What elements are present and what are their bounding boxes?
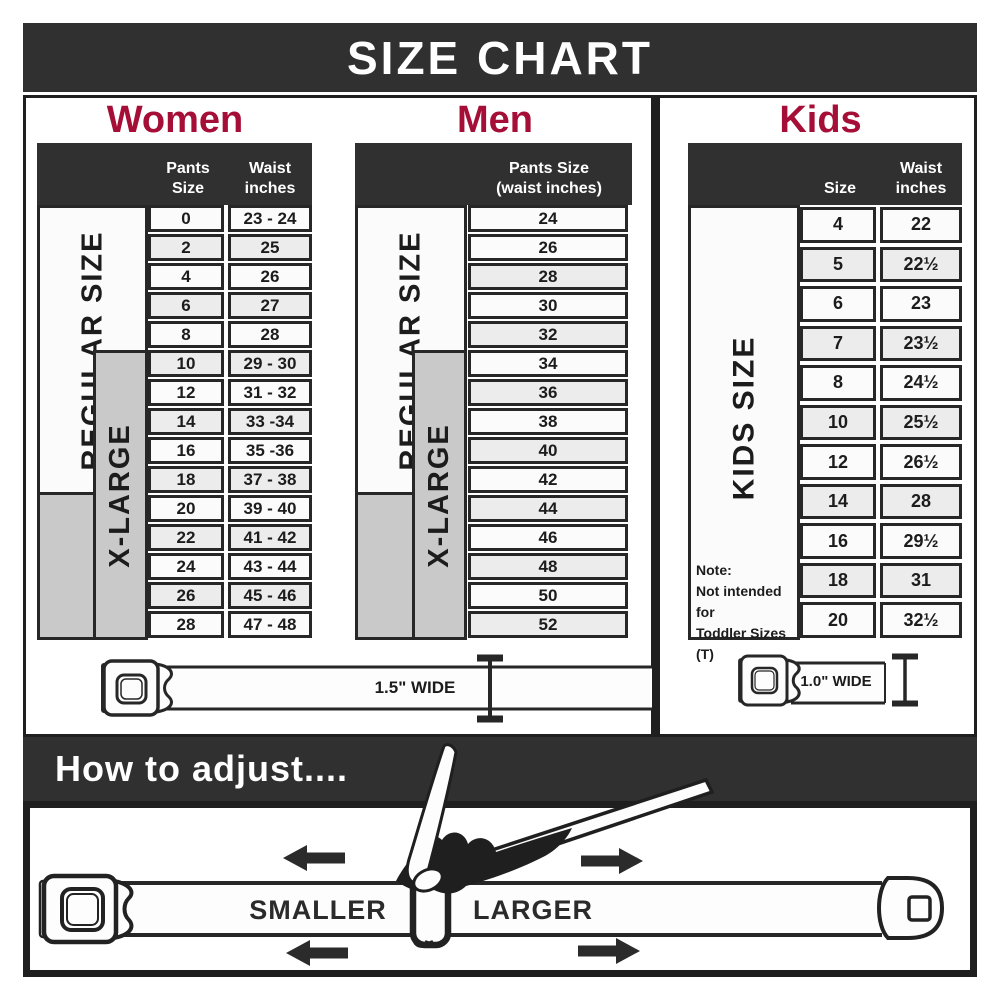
table-row: 1428 <box>800 482 962 522</box>
kids-note-title: Note: <box>696 560 796 581</box>
table-cell: 22 <box>880 207 962 243</box>
panel-divider <box>651 95 660 737</box>
kids-table-header: Size Waist inches <box>688 143 962 205</box>
table-row: 24 <box>468 205 632 234</box>
table-cell: 28 <box>228 321 312 348</box>
table-cell: 45 - 46 <box>228 582 312 609</box>
table-row: 1629½ <box>800 521 962 561</box>
table-row: 522½ <box>800 245 962 285</box>
table-cell: 27 <box>228 292 312 319</box>
table-row: 2645 - 46 <box>148 582 312 611</box>
men-xlarge-box: X-LARGE <box>412 350 467 640</box>
table-cell: 12 <box>800 444 876 480</box>
kids-col2-header: Waist inches <box>880 153 962 199</box>
men-table: 242628303234363840424446485052 <box>468 205 632 640</box>
table-row: 36 <box>468 379 632 408</box>
table-cell: 39 - 40 <box>228 495 312 522</box>
table-cell: 34 <box>468 350 628 377</box>
seatbelt-buckle-icon <box>40 876 131 942</box>
table-cell: 14 <box>800 484 876 520</box>
table-cell: 10 <box>148 350 224 377</box>
table-cell: 26 <box>228 263 312 290</box>
larger-label: LARGER <box>474 896 592 924</box>
arrow-right-icon <box>578 938 640 964</box>
table-cell: 5 <box>800 247 876 283</box>
table-cell: 20 <box>800 602 876 638</box>
table-cell: 42 <box>468 466 628 493</box>
table-cell: 18 <box>800 563 876 599</box>
seatbelt-buckle-icon <box>102 661 171 715</box>
table-row: 40 <box>468 437 632 466</box>
table-cell: 30 <box>468 292 628 319</box>
table-cell: 23½ <box>880 326 962 362</box>
women-col1-header: Pants Size <box>148 173 228 199</box>
table-cell: 14 <box>148 408 224 435</box>
kids-size-label: KIDS SIZE <box>727 336 761 501</box>
table-cell: 2 <box>148 234 224 261</box>
table-cell: 16 <box>148 437 224 464</box>
table-cell: 28 <box>148 611 224 638</box>
men-col-header: Pants Size (waist inches) <box>468 151 630 199</box>
kids-size-label-wrap: KIDS SIZE <box>691 243 797 593</box>
arrow-left-icon <box>283 845 345 871</box>
table-cell: 22 <box>148 524 224 551</box>
table-row: 1635 -36 <box>148 437 312 466</box>
table-cell: 31 <box>880 563 962 599</box>
table-cell: 35 -36 <box>228 437 312 464</box>
table-cell: 37 - 38 <box>228 466 312 493</box>
kids-belt-width-label: 1.0" WIDE <box>789 671 883 691</box>
men-table-header: Pants Size (waist inches) <box>355 143 632 205</box>
table-row: 38 <box>468 408 632 437</box>
table-row: 34 <box>468 350 632 379</box>
table-cell: 32½ <box>880 602 962 638</box>
table-cell: 16 <box>800 523 876 559</box>
women-xlarge-box: X-LARGE <box>93 350 148 640</box>
page-title: SIZE CHART <box>347 31 653 85</box>
table-row: 32 <box>468 321 632 350</box>
arrow-right-icon <box>581 848 643 874</box>
table-row: 723½ <box>800 324 962 364</box>
title-bar: SIZE CHART <box>23 23 977 92</box>
table-cell: 4 <box>800 207 876 243</box>
table-cell: 40 <box>468 437 628 464</box>
table-row: 2032½ <box>800 600 962 640</box>
table-cell: 52 <box>468 611 628 638</box>
women-table: 023 - 242254266278281029 - 301231 - 3214… <box>148 205 312 640</box>
adjust-illustration <box>30 740 970 970</box>
table-row: 1433 -34 <box>148 408 312 437</box>
women-table-header: Pants Size Waist inches <box>37 143 312 205</box>
table-cell: 18 <box>148 466 224 493</box>
table-cell: 38 <box>468 408 628 435</box>
table-cell: 29 - 30 <box>228 350 312 377</box>
table-row: 623 <box>800 284 962 324</box>
table-row: 50 <box>468 582 632 611</box>
men-heading: Men <box>395 99 595 142</box>
table-cell: 4 <box>148 263 224 290</box>
women-col2-header: Waist inches <box>228 153 312 199</box>
kids-heading: Kids <box>718 99 923 142</box>
table-cell: 31 - 32 <box>228 379 312 406</box>
table-cell: 46 <box>468 524 628 551</box>
width-measure-icon <box>892 654 918 706</box>
table-cell: 32 <box>468 321 628 348</box>
table-cell: 41 - 42 <box>228 524 312 551</box>
table-cell: 47 - 48 <box>228 611 312 638</box>
table-cell: 50 <box>468 582 628 609</box>
table-cell: 28 <box>880 484 962 520</box>
table-cell: 8 <box>148 321 224 348</box>
table-cell: 20 <box>148 495 224 522</box>
table-row: 1231 - 32 <box>148 379 312 408</box>
belt-tip-icon <box>879 878 942 938</box>
table-cell: 10 <box>800 405 876 441</box>
table-row: 44 <box>468 495 632 524</box>
table-cell: 22½ <box>880 247 962 283</box>
table-row: 023 - 24 <box>148 205 312 234</box>
table-row: 30 <box>468 292 632 321</box>
table-row: 2847 - 48 <box>148 611 312 640</box>
table-row: 1226½ <box>800 442 962 482</box>
hand-pinch-icon <box>396 745 572 896</box>
smaller-label: SMALLER <box>243 896 393 924</box>
table-row: 46 <box>468 524 632 553</box>
table-cell: 44 <box>468 495 628 522</box>
table-row: 48 <box>468 553 632 582</box>
table-cell: 23 - 24 <box>228 205 312 232</box>
table-row: 824½ <box>800 363 962 403</box>
table-cell: 26½ <box>880 444 962 480</box>
arrow-left-icon <box>286 940 348 966</box>
table-cell: 24½ <box>880 365 962 401</box>
table-row: 1025½ <box>800 403 962 443</box>
table-row: 2241 - 42 <box>148 524 312 553</box>
table-cell: 6 <box>800 286 876 322</box>
table-row: 1831 <box>800 561 962 601</box>
table-cell: 29½ <box>880 523 962 559</box>
table-row: 422 <box>800 205 962 245</box>
table-row: 225 <box>148 234 312 263</box>
table-cell: 6 <box>148 292 224 319</box>
men-xlarge-label: X-LARGE <box>423 423 456 568</box>
table-cell: 25 <box>228 234 312 261</box>
table-row: 426 <box>148 263 312 292</box>
table-cell: 24 <box>468 205 628 232</box>
table-row: 2039 - 40 <box>148 495 312 524</box>
table-cell: 25½ <box>880 405 962 441</box>
table-row: 627 <box>148 292 312 321</box>
women-heading: Women <box>75 99 275 142</box>
table-cell: 23 <box>880 286 962 322</box>
table-cell: 26 <box>468 234 628 261</box>
table-row: 42 <box>468 466 632 495</box>
table-cell: 24 <box>148 553 224 580</box>
size-chart-infographic: SIZE CHART Women Men Kids Pants Size Wai… <box>0 0 1000 1000</box>
table-cell: 12 <box>148 379 224 406</box>
table-row: 1837 - 38 <box>148 466 312 495</box>
kids-size-box: KIDS SIZE Note: Not intended for Toddler… <box>688 205 800 640</box>
table-cell: 28 <box>468 263 628 290</box>
table-cell: 33 -34 <box>228 408 312 435</box>
table-row: 2443 - 44 <box>148 553 312 582</box>
women-xlarge-label: X-LARGE <box>104 423 137 568</box>
kids-col1-header: Size <box>800 173 880 199</box>
table-row: 1029 - 30 <box>148 350 312 379</box>
kids-table: 422522½623723½824½1025½1226½14281629½183… <box>800 205 962 640</box>
table-row: 26 <box>468 234 632 263</box>
table-cell: 36 <box>468 379 628 406</box>
table-cell: 7 <box>800 326 876 362</box>
table-row: 28 <box>468 263 632 292</box>
table-cell: 43 - 44 <box>228 553 312 580</box>
adult-belt-width-label: 1.5" WIDE <box>363 677 467 699</box>
table-cell: 8 <box>800 365 876 401</box>
table-cell: 48 <box>468 553 628 580</box>
table-cell: 26 <box>148 582 224 609</box>
table-cell: 0 <box>148 205 224 232</box>
kids-note-line1: Not intended for <box>696 581 796 623</box>
table-row: 828 <box>148 321 312 350</box>
table-row: 52 <box>468 611 632 640</box>
